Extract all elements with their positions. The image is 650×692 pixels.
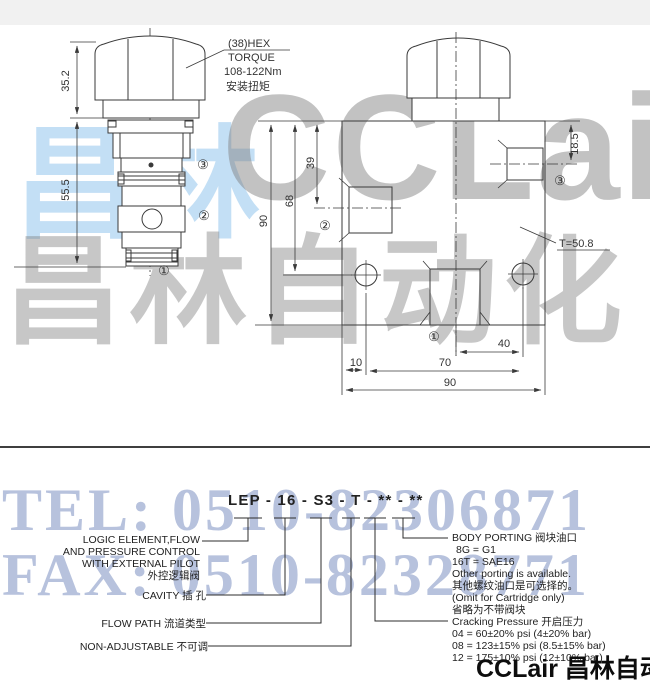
leader-function (202, 518, 262, 541)
leader-cavity (206, 518, 296, 595)
function-line2: AND PRESSURE CONTROL (63, 546, 200, 558)
dim-70: 70 (439, 357, 451, 369)
port1-marker: ① (158, 263, 170, 278)
dim-68: 68 (284, 195, 296, 207)
thickness-note: T=50.8 (559, 238, 594, 250)
hex-note-line4: 安装扭矩 (226, 79, 270, 93)
company-logo: CCLair 昌林自动化 (476, 649, 650, 685)
body-outline (342, 121, 545, 325)
leader-cracking-pressure (364, 518, 448, 621)
callout-non-adjustable: NON-ADJUSTABLE 不可调 (80, 641, 208, 653)
callout-cavity: CAVITY 插 孔 (142, 590, 206, 602)
dim-55-5: 55.5 (60, 179, 72, 200)
dim-39: 39 (305, 157, 317, 169)
hex-note-line3: 108-122Nm (224, 66, 281, 78)
cracking-title: Cracking Pressure 开启压力 (452, 616, 606, 628)
body-porting-16t: 16T = SAE16 (452, 556, 578, 568)
callout-body-porting: BODY PORTING 阀块油口 8G = G1 16T = SAE16 Ot… (452, 532, 578, 616)
dim-90-height: 90 (258, 215, 270, 227)
function-line1: LOGIC ELEMENT,FLOW (63, 534, 200, 546)
body-porting-other-zh: 其他螺纹油口是可选择的。 (452, 580, 578, 592)
leader-body-porting (392, 518, 448, 538)
leader-flow-path (206, 518, 332, 623)
body-porting-title: BODY PORTING 阀块油口 (452, 532, 578, 544)
port3-marker-body: ③ (554, 173, 566, 188)
port2-marker-body: ② (319, 218, 331, 233)
datasheet-page: 昌林 CCLair 昌林自动化 TEL: 0510-82306871 FAX: … (0, 0, 650, 692)
body-porting-omit-zh: 省略为不带阀块 (452, 604, 578, 616)
leader-lines (202, 518, 448, 646)
body-porting-8g: 8G = G1 (452, 544, 578, 556)
callout-flow-path: FLOW PATH 流道类型 (101, 618, 206, 630)
dim-40: 40 (498, 338, 510, 350)
body-porting-other: Other porting is available. (452, 568, 578, 580)
engineering-drawings: 35.2 55.5 (38)HEX TORQUE 108-122Nm 安装扭矩 … (0, 0, 650, 447)
port1-marker-body: ① (428, 329, 440, 344)
pilot-hole (149, 163, 154, 168)
port2-marker: ② (198, 208, 210, 223)
dim-90-width: 90 (444, 377, 456, 389)
body-porting-omit: (Omit for Cartridge only) (452, 592, 578, 604)
dim-35-2: 35.2 (60, 70, 72, 91)
hex-note-line2: TORQUE (228, 52, 275, 64)
port3-marker: ③ (197, 157, 209, 172)
side-port-circle (142, 209, 162, 229)
model-code: LEP - 16 - S3 - T - ** - ** (228, 492, 424, 509)
leader-non-adjustable (208, 518, 360, 646)
cracking-04: 04 = 60±20% psi (4±20% bar) (452, 628, 606, 640)
callout-function: LOGIC ELEMENT,FLOW AND PRESSURE CONTROL … (63, 534, 200, 582)
function-line4: 外控逻辑阀 (63, 570, 200, 582)
function-line3: WITH EXTERNAL PILOT (63, 558, 200, 570)
dim-18-5: 18.5 (569, 133, 581, 154)
dim-10: 10 (350, 357, 362, 369)
hex-note-line1: (38)HEX (228, 38, 271, 50)
